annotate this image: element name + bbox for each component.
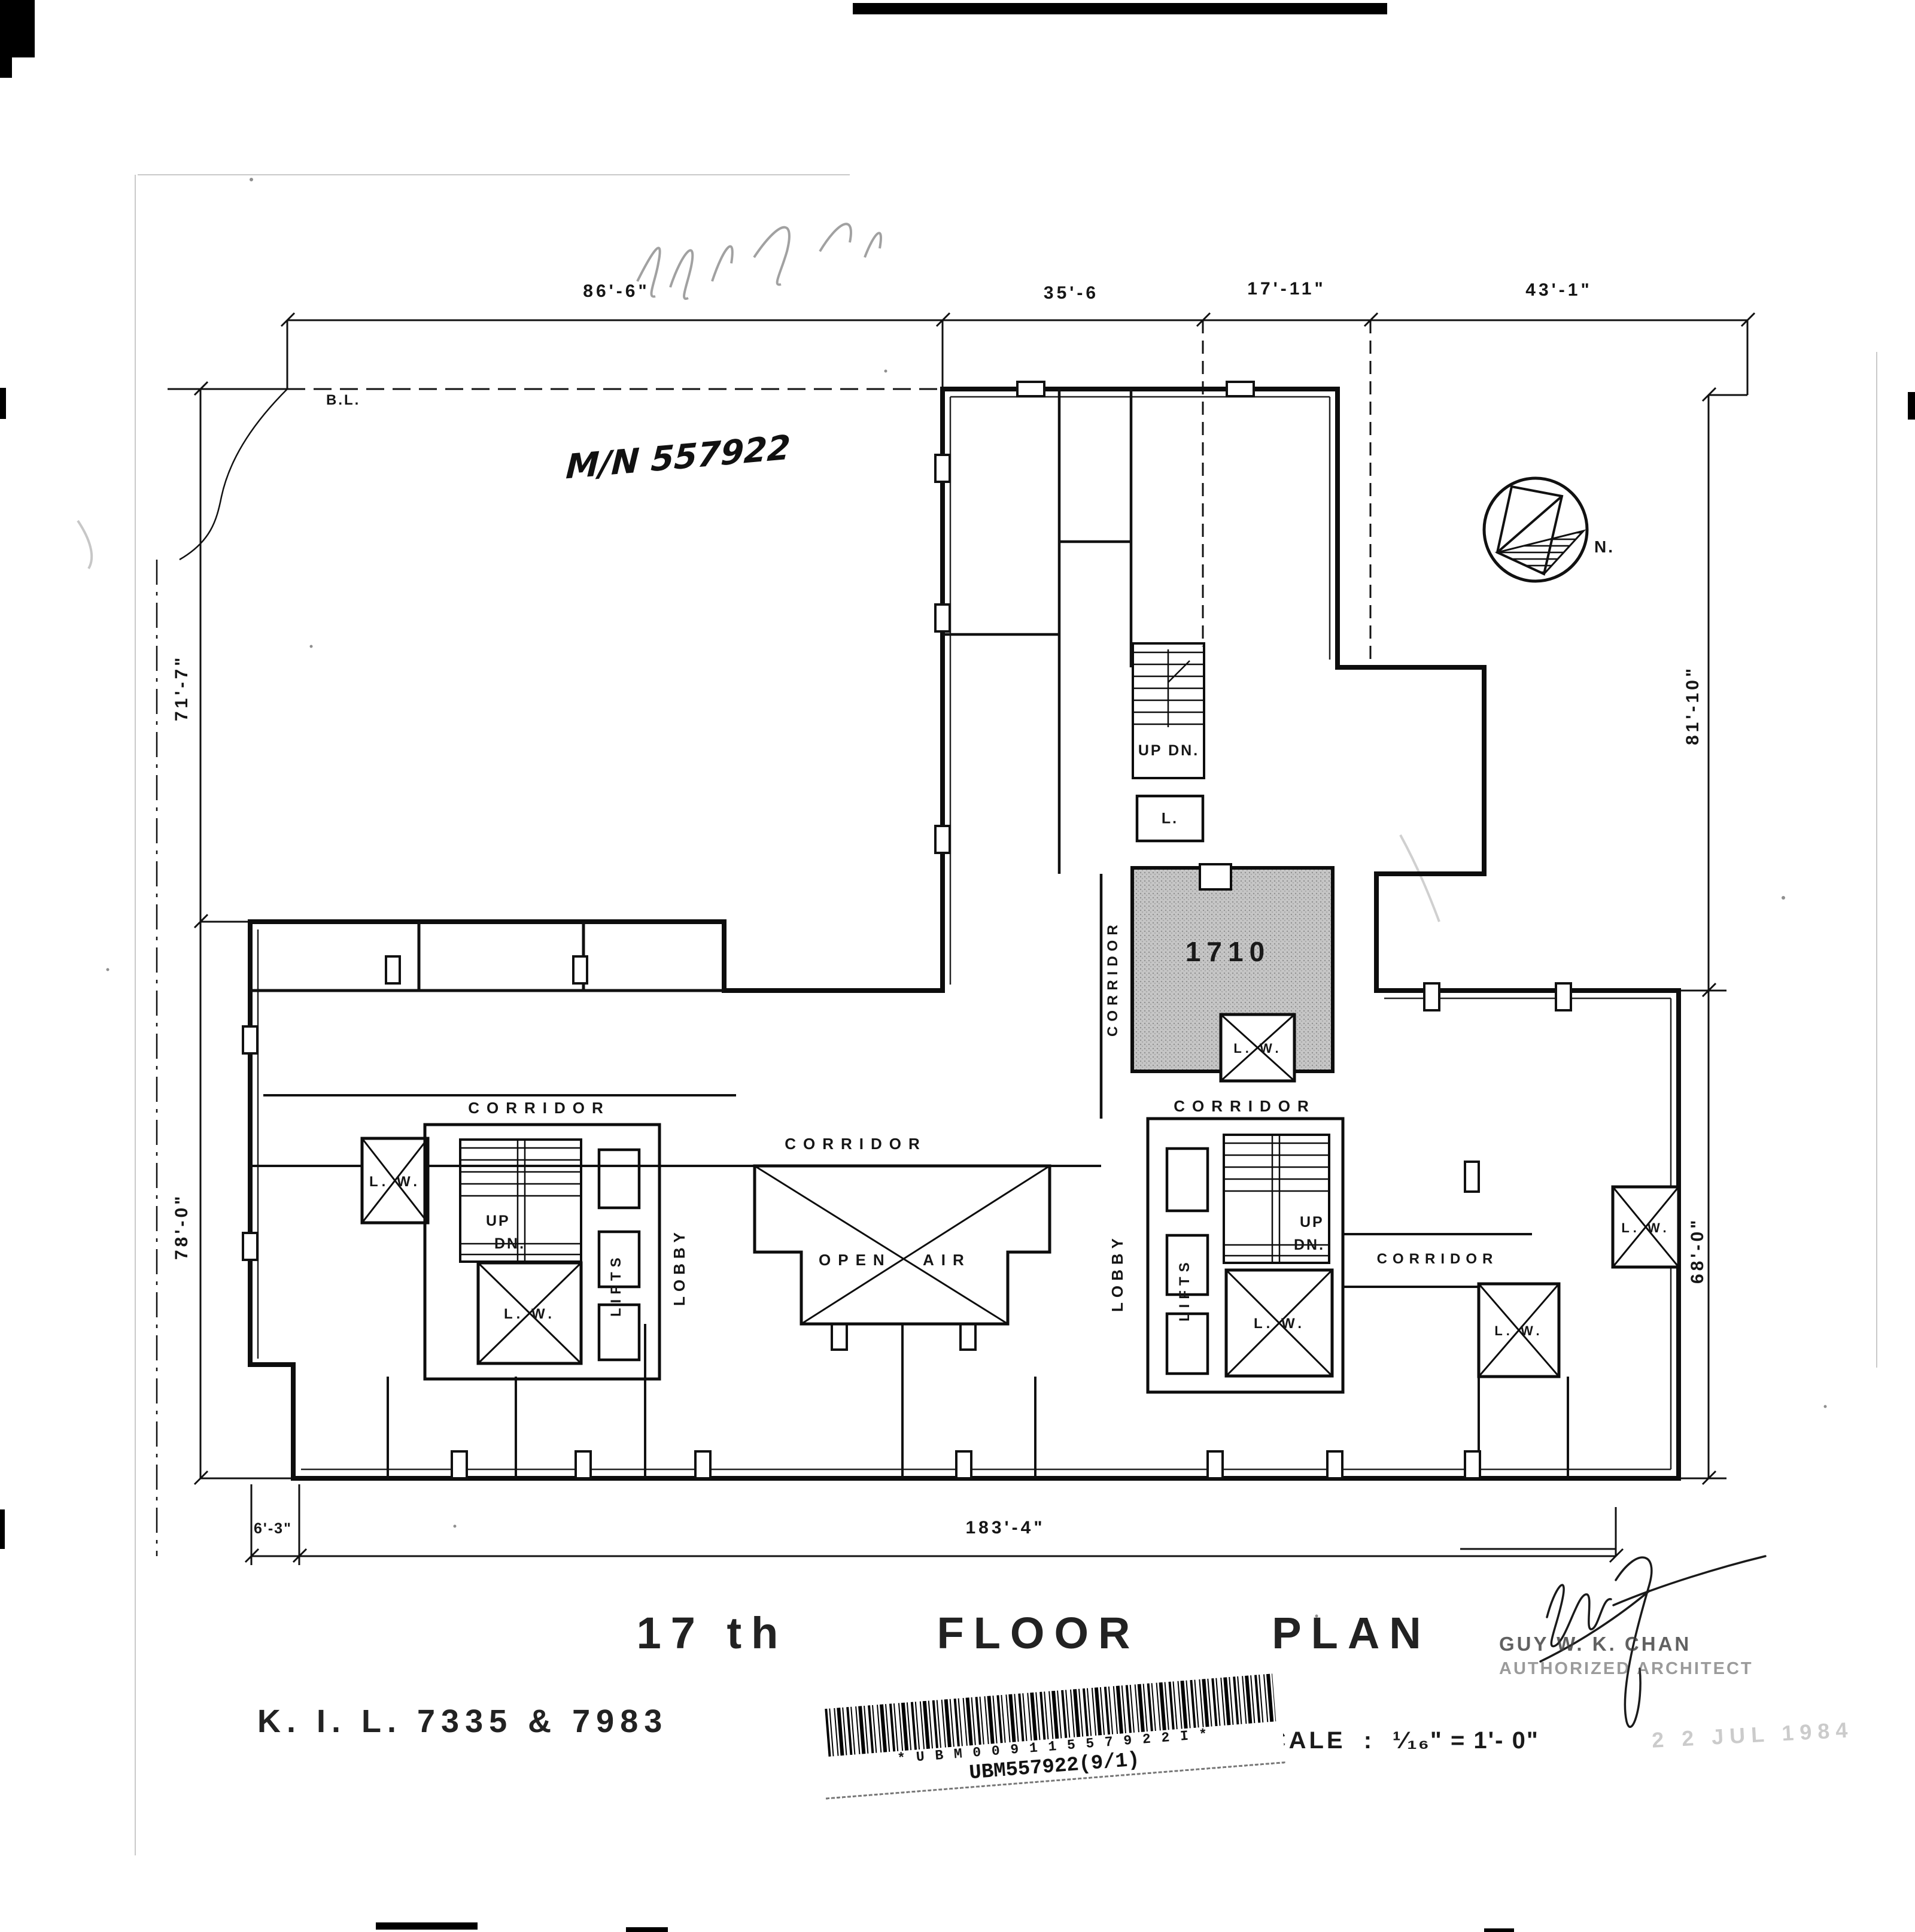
open-air-label-2: AIR xyxy=(923,1251,971,1269)
wall-marks xyxy=(243,382,1571,1478)
corridor-label-right-wing: CORRIDOR xyxy=(1377,1251,1498,1268)
corridor-label-center: CORRIDOR xyxy=(785,1135,927,1153)
unit-1710-label: 1710 xyxy=(1186,935,1270,968)
pencil-scribble xyxy=(78,224,1439,922)
up-label-left-core: UP xyxy=(486,1213,510,1230)
boundary-line xyxy=(157,389,943,1556)
title-floor-number: 17 th xyxy=(637,1608,788,1658)
dim-top-1: 86'-6" xyxy=(583,281,649,302)
architect-role: AUTHORIZED ARCHITECT xyxy=(1499,1659,1753,1679)
lot-number: K. I. L. 7335 & 7983 xyxy=(257,1703,668,1740)
dim-right-2: 68'-0" xyxy=(1688,1217,1708,1284)
updn-label-tower: UP DN. xyxy=(1138,742,1199,760)
lw-label-right-core: L. W. xyxy=(1254,1316,1305,1332)
scale-separator: : xyxy=(1364,1727,1375,1754)
lifts-label-right: LIFTS xyxy=(1177,1257,1193,1322)
dim-top-2: 35'-6 xyxy=(1044,283,1099,303)
title-plan-word: PLAN xyxy=(1272,1608,1430,1658)
lw-label-left-core: L. W. xyxy=(504,1306,555,1323)
dim-left-2: 78'-0" xyxy=(172,1193,192,1260)
dim-bottom-offset: 6'-3" xyxy=(254,1520,292,1538)
lw-label-1710: L. W. xyxy=(1233,1041,1282,1056)
dn-label-left-core: DN. xyxy=(494,1235,525,1253)
up-label-right-core: UP xyxy=(1300,1214,1324,1231)
dn-label-right-core: DN. xyxy=(1294,1237,1325,1254)
north-arrow-icon xyxy=(1484,478,1587,581)
corridor-label-left-core: CORRIDOR xyxy=(468,1099,610,1117)
building-outline xyxy=(250,389,1679,1478)
corridor-label-vertical: CORRIDOR xyxy=(1105,920,1121,1037)
lw-label-left-outer: L. W. xyxy=(369,1174,421,1190)
dim-bottom-total: 183'-4" xyxy=(965,1518,1045,1538)
dim-right-1: 81'-10" xyxy=(1683,666,1703,745)
scale-note: SCALE : ¹⁄₁₆" = 1'- 0" xyxy=(1250,1727,1539,1754)
corridor-label-right-core: CORRIDOR xyxy=(1174,1097,1316,1116)
lifts-label-left: LIFTS xyxy=(608,1253,625,1317)
lavatory-label: L. xyxy=(1162,810,1178,828)
lw-label-far-right: L. W. xyxy=(1621,1220,1670,1236)
title-floor-word: FLOOR xyxy=(937,1608,1140,1658)
floor-plan-sheet: M/N 557922 B.L. N. 86'-6" 35'-6 17'-11" … xyxy=(0,0,1915,1932)
open-air-label-1: OPEN xyxy=(819,1251,892,1269)
dim-left-1: 71'-7" xyxy=(172,655,192,721)
lobby-label-left: LOBBY xyxy=(670,1228,689,1306)
dim-top-3: 17'-11" xyxy=(1247,279,1326,299)
architect-name: GUY W. K. CHAN xyxy=(1499,1633,1691,1655)
scale-value: ¹⁄₁₆" = 1'- 0" xyxy=(1393,1727,1539,1754)
north-label: N. xyxy=(1594,537,1615,557)
lobby-label-right: LOBBY xyxy=(1108,1234,1127,1312)
boundary-label: B.L. xyxy=(326,392,360,409)
lw-label-mid-right: L. W. xyxy=(1494,1323,1543,1339)
open-air-well xyxy=(755,1166,1050,1324)
dim-top-4: 43'-1" xyxy=(1525,280,1592,300)
